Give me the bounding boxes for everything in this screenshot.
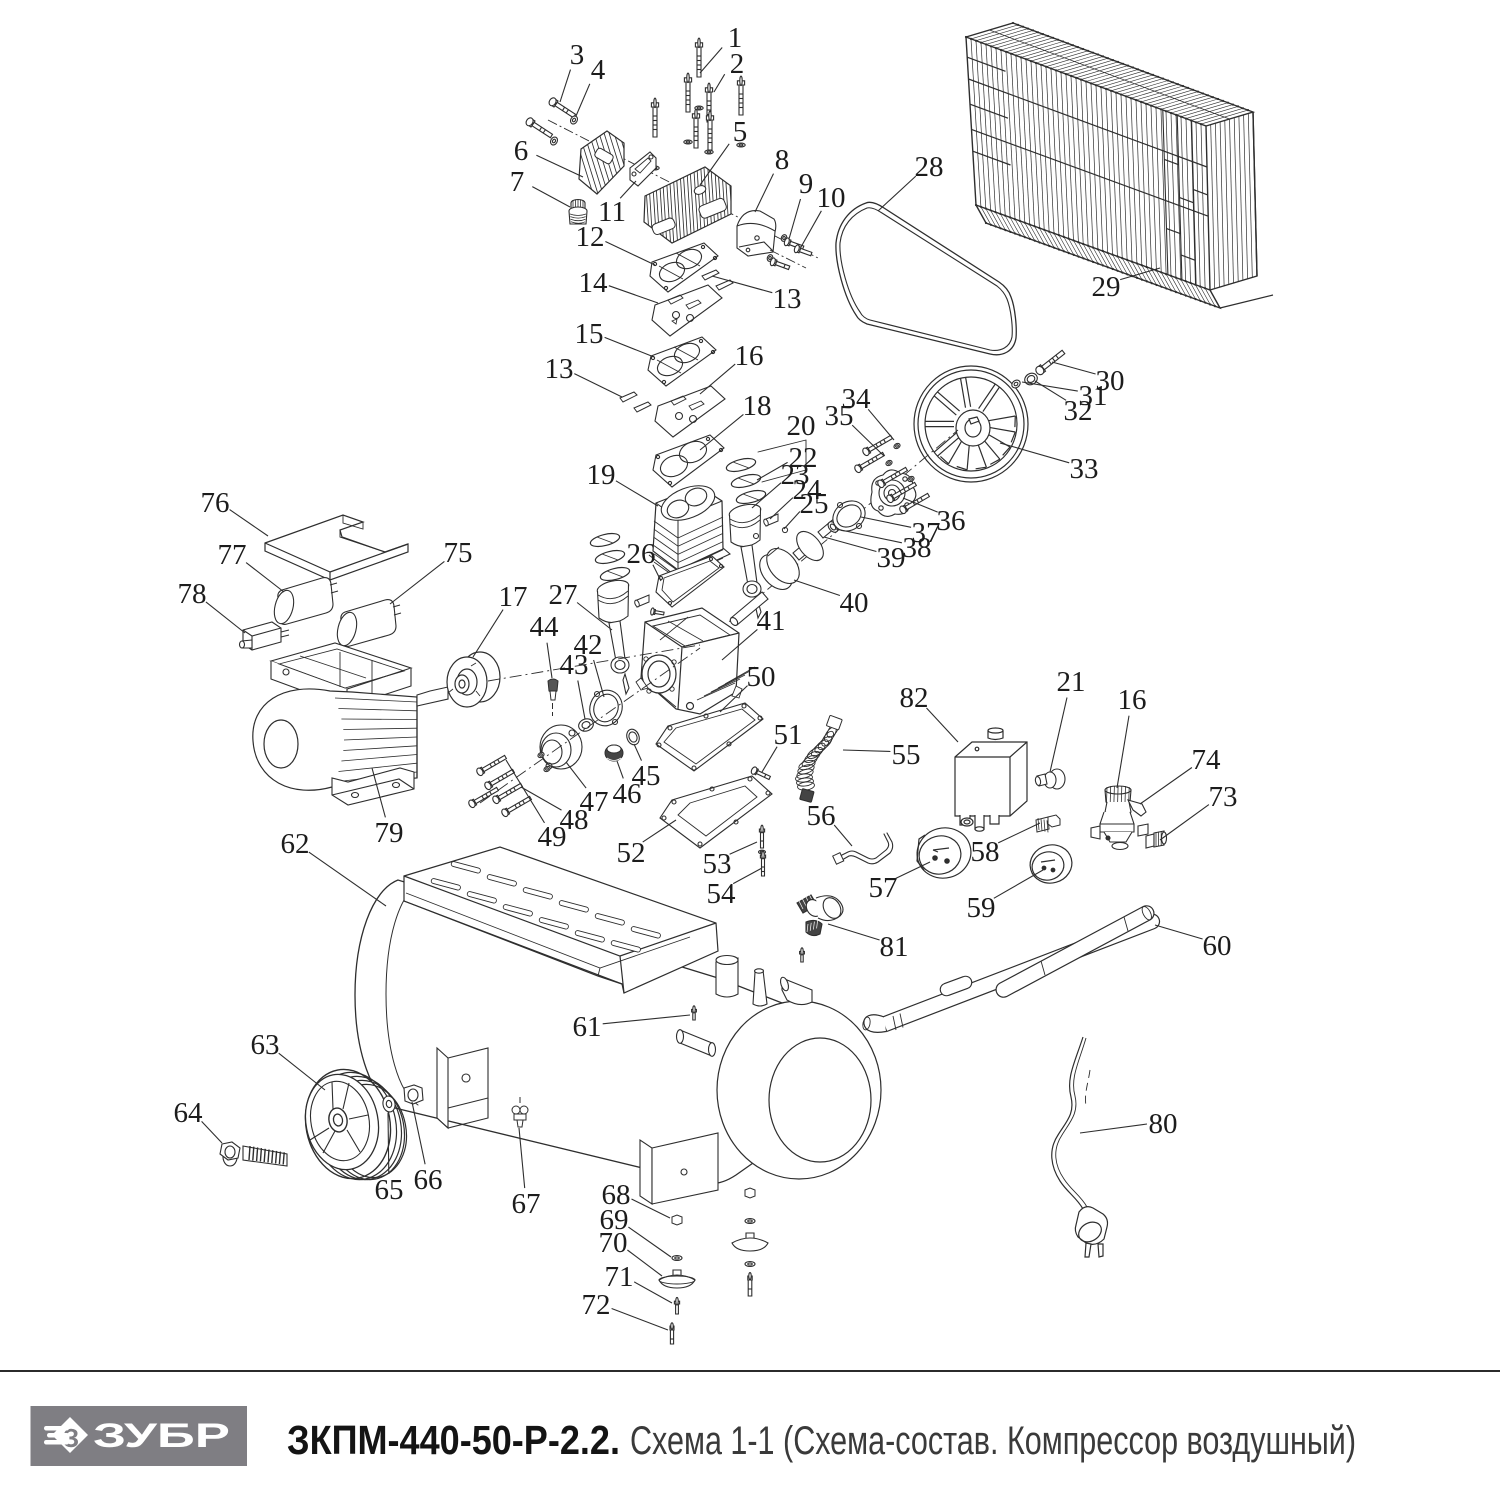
svg-text:7: 7: [510, 166, 525, 198]
svg-text:77: 77: [218, 539, 247, 571]
svg-text:58: 58: [971, 836, 1000, 868]
svg-text:16: 16: [1118, 684, 1147, 716]
svg-text:27: 27: [549, 579, 578, 611]
svg-text:82: 82: [900, 682, 929, 714]
svg-text:49: 49: [538, 821, 567, 853]
svg-text:62: 62: [281, 828, 310, 860]
svg-text:56: 56: [807, 800, 836, 832]
svg-text:41: 41: [757, 605, 786, 637]
svg-text:ЗКПМ-440-50-Р-2.2.: ЗКПМ-440-50-Р-2.2.: [287, 1417, 620, 1463]
svg-text:15: 15: [575, 318, 604, 350]
svg-text:78: 78: [178, 578, 207, 610]
svg-text:59: 59: [967, 892, 996, 924]
svg-text:43: 43: [560, 649, 589, 681]
svg-text:12: 12: [576, 221, 605, 253]
svg-text:33: 33: [1070, 453, 1099, 485]
svg-text:52: 52: [617, 837, 646, 869]
svg-text:46: 46: [613, 778, 642, 810]
svg-text:5: 5: [733, 116, 748, 148]
svg-text:53: 53: [703, 848, 732, 880]
svg-text:67: 67: [512, 1188, 541, 1220]
svg-text:21: 21: [1057, 666, 1086, 698]
svg-text:55: 55: [892, 739, 921, 771]
svg-text:40: 40: [840, 587, 869, 619]
svg-text:39: 39: [877, 542, 906, 574]
svg-text:35: 35: [825, 400, 854, 432]
svg-text:ЗУБР: ЗУБР: [93, 1417, 230, 1455]
svg-text:4: 4: [591, 54, 606, 86]
svg-text:70: 70: [599, 1227, 628, 1259]
svg-text:20: 20: [787, 410, 816, 442]
svg-text:10: 10: [817, 182, 846, 214]
svg-text:17: 17: [499, 581, 528, 613]
svg-text:73: 73: [1209, 781, 1238, 813]
svg-text:14: 14: [579, 267, 609, 299]
svg-text:57: 57: [869, 872, 898, 904]
svg-text:25: 25: [800, 488, 829, 520]
svg-text:60: 60: [1203, 930, 1232, 962]
svg-text:8: 8: [775, 144, 790, 176]
svg-text:63: 63: [251, 1029, 280, 1061]
svg-text:6: 6: [514, 135, 529, 167]
svg-text:13: 13: [773, 283, 802, 315]
svg-text:79: 79: [375, 817, 404, 849]
svg-text:36: 36: [937, 505, 966, 537]
svg-text:2: 2: [730, 48, 745, 80]
svg-text:3: 3: [570, 39, 585, 71]
svg-text:50: 50: [747, 661, 776, 693]
svg-text:29: 29: [1092, 271, 1121, 303]
svg-text:80: 80: [1149, 1108, 1178, 1140]
svg-text:65: 65: [375, 1174, 404, 1206]
svg-text:75: 75: [444, 537, 473, 569]
svg-text:64: 64: [174, 1097, 204, 1129]
svg-text:Схема 1-1 (Схема-состав. Компр: Схема 1-1 (Схема-состав. Компрессор возд…: [630, 1419, 1356, 1463]
svg-text:61: 61: [573, 1011, 602, 1043]
svg-text:38: 38: [903, 532, 932, 564]
svg-text:32: 32: [1064, 395, 1093, 427]
svg-text:72: 72: [582, 1289, 611, 1321]
svg-text:76: 76: [201, 487, 230, 519]
svg-text:13: 13: [545, 353, 574, 385]
svg-text:51: 51: [774, 719, 803, 751]
svg-text:26: 26: [627, 538, 656, 570]
svg-text:16: 16: [735, 340, 764, 372]
svg-text:81: 81: [880, 931, 909, 963]
svg-text:28: 28: [915, 151, 944, 183]
svg-text:74: 74: [1192, 744, 1222, 776]
svg-text:44: 44: [530, 611, 560, 643]
svg-text:54: 54: [707, 878, 737, 910]
svg-text:18: 18: [743, 390, 772, 422]
svg-text:19: 19: [587, 459, 616, 491]
svg-text:66: 66: [414, 1164, 443, 1196]
svg-text:9: 9: [799, 168, 814, 200]
